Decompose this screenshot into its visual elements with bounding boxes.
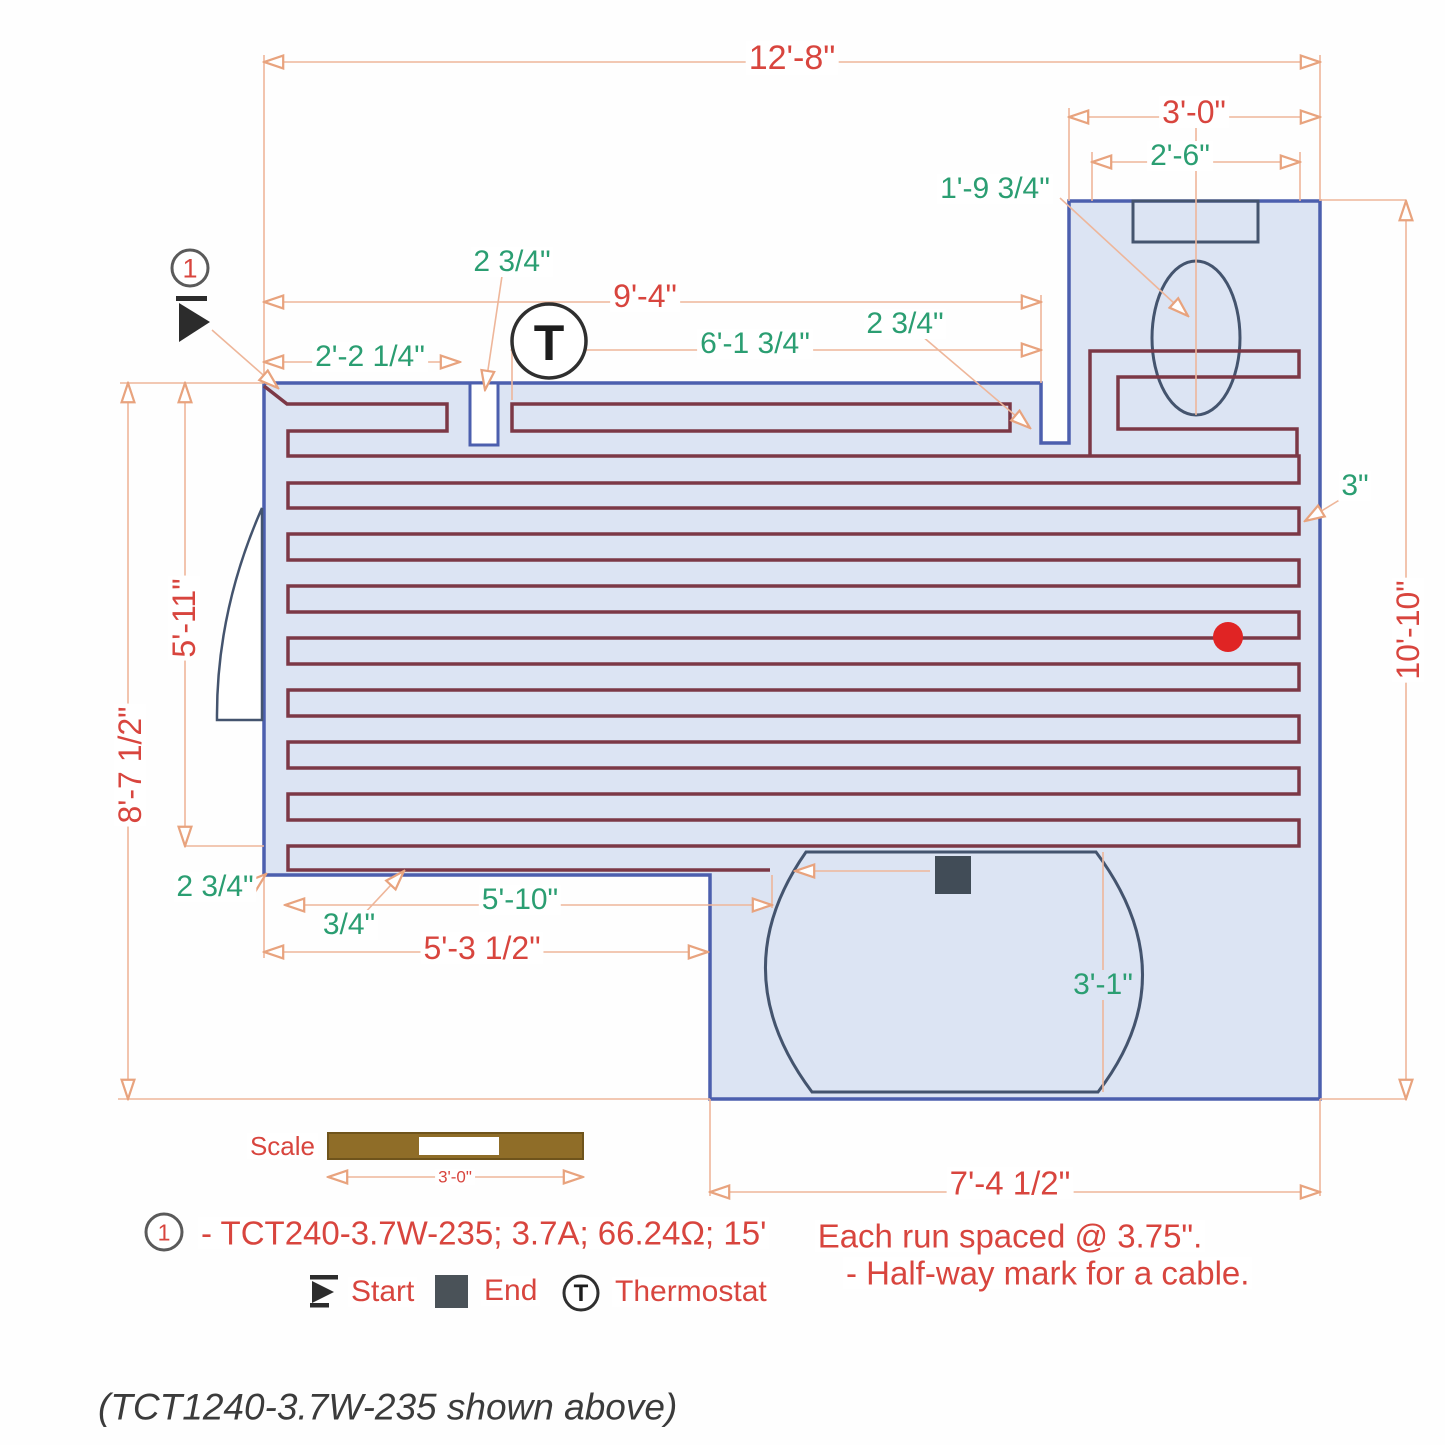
dim-height-left: 8'-7 1/2" bbox=[114, 703, 146, 826]
dim-gap-a: 2 3/4" bbox=[470, 247, 553, 277]
halfway-mark-dot bbox=[1213, 622, 1243, 652]
note-halfway-mark: - Half-way mark for a cable. bbox=[843, 1257, 1252, 1290]
dim-top-run: 9'-4" bbox=[610, 280, 680, 312]
cable-end-marker bbox=[935, 856, 971, 894]
legend-product-spec: - TCT240-3.7W-235; 3.7A; 66.24Ω; 15' bbox=[198, 1217, 769, 1250]
dim-gap-b: 2 3/4" bbox=[863, 309, 946, 339]
dim-bottom-left: 5'-3 1/2" bbox=[420, 932, 543, 964]
door-swing bbox=[217, 508, 262, 720]
callout-number: 1 bbox=[182, 256, 197, 283]
scale-label: Scale bbox=[247, 1133, 318, 1159]
dim-height-right: 10'-10" bbox=[1392, 577, 1424, 682]
dim-cable-height: 5'-11" bbox=[168, 575, 200, 660]
legend-end-icon bbox=[435, 1275, 468, 1308]
legend-callout-number: 1 bbox=[158, 1222, 171, 1245]
heating-layout-diagram: 12'-8" 3'-0" 2'-6" 1'-9 3/4" 9'-4" 2 3/4… bbox=[0, 0, 1445, 1445]
legend-thermostat-label: Thermostat bbox=[612, 1277, 770, 1307]
note-run-spacing: Each run spaced @ 3.75". bbox=[815, 1220, 1206, 1253]
dim-edge-gap: 3" bbox=[1338, 471, 1371, 501]
dim-mid-run: 6'-1 3/4" bbox=[697, 329, 813, 359]
dim-start-offset: 2'-2 1/4" bbox=[312, 342, 428, 372]
dim-gap-d: 3/4" bbox=[320, 910, 378, 940]
dim-tub-height: 3'-1" bbox=[1070, 970, 1136, 1000]
dim-toilet-offset: 1'-9 3/4" bbox=[937, 174, 1053, 204]
legend-start-icon bbox=[310, 1275, 338, 1308]
dim-gap-c: 2 3/4" bbox=[173, 872, 256, 902]
dim-alcove-width: 3'-0" bbox=[1159, 96, 1229, 128]
scale-bar bbox=[328, 1133, 583, 1159]
drawing-caption: (TCT1240-3.7W-235 shown above) bbox=[95, 1389, 680, 1426]
thermostat-letter: T bbox=[534, 318, 565, 368]
dim-tub-width: 7'-4 1/2" bbox=[947, 1167, 1074, 1200]
scale-value: 3'-0" bbox=[435, 1169, 475, 1186]
legend-thermostat-letter: T bbox=[574, 1282, 589, 1306]
legend-start-label: Start bbox=[348, 1277, 417, 1307]
wall-notch bbox=[470, 383, 498, 445]
dim-bottom-run: 5'-10" bbox=[479, 885, 561, 915]
dim-total-width: 12'-8" bbox=[746, 41, 839, 75]
dim-alcove-inner: 2'-6" bbox=[1147, 141, 1213, 171]
legend-end-label: End bbox=[481, 1276, 540, 1306]
cable-start-marker bbox=[176, 296, 210, 342]
